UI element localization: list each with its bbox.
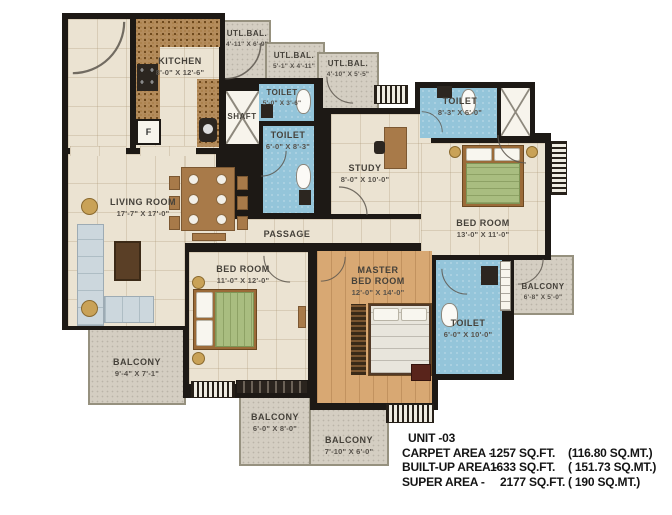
label-living-room: LIVING ROOM 17'-7" X 17'-0": [110, 197, 176, 219]
wardrobe-strip: [500, 261, 511, 311]
carpet-area-metric: (116.80 SQ.MT.): [568, 446, 652, 460]
label-toilet-right: TOILET 8'-3" X 6'-0": [438, 96, 482, 118]
label-balcony-bottom-1: BALCONY 6'-0" X 8'-0": [251, 412, 299, 434]
bedside-table: [526, 146, 538, 158]
kitchen-opening: [140, 146, 196, 156]
pillow: [373, 308, 399, 321]
room-dims: 12'-0" X 14'-0": [351, 287, 405, 298]
bed-mid-duvet: [215, 292, 254, 347]
plate: [216, 214, 227, 225]
label-balcony-left: BALCONY 9'-4" X 7'-1": [113, 357, 161, 379]
window-bedroom-mid: [191, 381, 235, 398]
room-name: PASSAGE: [264, 229, 311, 240]
builtup-area-row: BUILT-UP AREA -1633 SQ.FT.( 151.73 SQ.MT…: [402, 460, 670, 475]
room-name-line1: MASTER: [351, 265, 405, 276]
room-dims: 5'-1" X 4'-11": [273, 61, 315, 72]
unit-number: UNIT -03: [408, 431, 670, 446]
label-toilet-top: TOILET 5'-0" X 3'-6": [263, 87, 302, 109]
toilet-master-basin: [481, 266, 498, 285]
bed-right-duvet: [466, 163, 520, 204]
wardrobe-bedroom-mid: [236, 380, 308, 394]
room-dims: 11'-0" X 12'-0": [216, 275, 270, 286]
bedroom-mid-shelf: [298, 306, 306, 328]
window-master: [386, 404, 434, 423]
bedside-table: [449, 146, 461, 158]
room-dims: 6'-0" X 8'-0": [251, 423, 299, 434]
bedside-lamp: [192, 276, 205, 289]
label-passage: PASSAGE: [264, 229, 311, 240]
label-kitchen: KITCHEN 8'-0" X 12'-6": [156, 56, 205, 78]
room-dims: 6'-0" X 10'-0": [444, 329, 493, 340]
chair: [237, 216, 248, 230]
label-bedroom-right: BED ROOM 13'-0" X 11'-0": [456, 218, 510, 240]
room-dims: 6'-8" X 5'-0": [521, 292, 564, 303]
plate: [216, 194, 227, 205]
room-name: BALCONY: [325, 435, 374, 446]
room-name: STUDY: [341, 163, 390, 174]
chair: [169, 176, 180, 190]
room-name: TOILET: [266, 130, 310, 141]
builtup-area-value: 1633 SQ.FT.: [490, 460, 568, 475]
room-name: UTL.BAL.: [226, 28, 268, 39]
room-name: BALCONY: [521, 281, 564, 292]
label-bedroom-mid: BED ROOM 11'-0" X 12'-0": [216, 264, 270, 286]
super-area-row: SUPER AREA -2177 SQ.FT.( 190 SQ.MT.): [402, 475, 670, 490]
window-bedroom-right: [551, 141, 567, 195]
room-name: BALCONY: [251, 412, 299, 423]
super-area-metric: ( 190 SQ.MT.): [568, 475, 640, 489]
room-dims: 6'-0" X 8'-3": [266, 141, 310, 152]
toilet-mid-basin: [299, 190, 311, 205]
side-table-2: [81, 300, 98, 317]
label-toilet-mid: TOILET 6'-0" X 8'-3": [266, 130, 310, 152]
plate: [188, 214, 199, 225]
carpet-area-value: 1257 SQ.FT.: [490, 446, 568, 461]
room-name-line2: BED ROOM: [351, 276, 405, 287]
label-utility-balcony-3: UTL.BAL. 4'-10" X 5'-5": [327, 58, 369, 80]
room-dims: 13'-0" X 11'-0": [456, 229, 510, 240]
super-area-value: 2177 SQ.FT.: [490, 475, 568, 490]
room-dims: 17'-7" X 17'-0": [110, 208, 176, 219]
chair: [237, 176, 248, 190]
room-name: UTL.BAL.: [273, 50, 315, 61]
room-dims: 8'-0" X 10'-0": [341, 174, 390, 185]
foyer-opening: [70, 146, 126, 156]
room-dims: 8'-0" X 12'-6": [156, 67, 205, 78]
room-name: KITCHEN: [156, 56, 205, 67]
door-arc-bedroom-right: [497, 134, 527, 164]
window-study: [374, 85, 408, 104]
room-name: BED ROOM: [216, 264, 270, 275]
passage-floor: [216, 219, 432, 243]
side-table-1: [81, 198, 98, 215]
room-name: BED ROOM: [456, 218, 510, 229]
room-dims: 7'-10" X 6'-0": [325, 446, 374, 457]
chair: [237, 196, 248, 210]
pillow: [196, 320, 213, 346]
room-name: UTL.BAL.: [327, 58, 369, 69]
room-dims: 4'-11" X 6'-9": [226, 39, 268, 50]
plate: [188, 174, 199, 185]
floor-plan-unit-03: F: [0, 0, 672, 515]
carpet-area-label: CARPET AREA -: [402, 446, 490, 461]
label-utility-balcony-1: UTL.BAL. 4'-11" X 6'-9": [226, 28, 268, 50]
label-study: STUDY 8'-0" X 10'-0": [341, 163, 390, 185]
room-dims: 5'-0" X 3'-6": [263, 98, 302, 109]
fridge-label: F: [146, 127, 152, 137]
closet-cross-icon: [501, 88, 530, 136]
label-master-bedroom: MASTER BED ROOM 12'-0" X 14'-0": [351, 265, 405, 298]
bedside-lamp: [192, 352, 205, 365]
room-dims: 8'-3" X 6'-0": [438, 107, 482, 118]
door-arc-study: [338, 186, 368, 216]
room-name: LIVING ROOM: [110, 197, 176, 208]
toilet-mid-wc: [296, 164, 311, 189]
door-arc-utility-balcony-3: [326, 76, 354, 104]
label-shaft: SHAFT: [227, 111, 256, 122]
room-name: BALCONY: [113, 357, 161, 368]
builtup-area-label: BUILT-UP AREA -: [402, 460, 490, 475]
master-rug: [351, 304, 366, 375]
room-name: TOILET: [263, 87, 302, 98]
pillow: [196, 292, 213, 318]
living-rug: [114, 241, 141, 281]
builtup-area-metric: ( 151.73 SQ.MT.): [568, 460, 656, 474]
room-name: TOILET: [444, 318, 493, 329]
door-arc-entry: [71, 20, 126, 75]
plate: [188, 194, 199, 205]
door-arc-toilet-mid: [260, 150, 287, 177]
room-name: SHAFT: [227, 111, 256, 122]
label-utility-balcony-2: UTL.BAL. 5'-1" X 4'-11": [273, 50, 315, 72]
study-chair: [374, 141, 385, 154]
room-dims: 9'-4" X 7'-1": [113, 368, 161, 379]
room-dims: 4'-10" X 5'-5": [327, 69, 369, 80]
pillow: [401, 308, 427, 321]
label-balcony-bottom-2: BALCONY 7'-10" X 6'-0": [325, 435, 374, 457]
door-arc-toilet-master: [441, 268, 468, 295]
door-arc-master: [320, 256, 346, 282]
sofa-loveseat: [104, 296, 154, 323]
room-name: TOILET: [438, 96, 482, 107]
unit-info: UNIT -03 CARPET AREA -1257 SQ.FT.(116.80…: [402, 431, 670, 489]
super-area-label: SUPER AREA -: [402, 475, 490, 490]
dining-bench: [192, 233, 226, 241]
carpet-area-row: CARPET AREA -1257 SQ.FT.(116.80 SQ.MT.): [402, 446, 670, 461]
kitchen-sink-basin: [203, 124, 213, 134]
master-dresser: [411, 364, 431, 381]
fridge: F: [136, 119, 161, 145]
pillow: [466, 148, 492, 161]
plate: [216, 174, 227, 185]
label-toilet-master: TOILET 6'-0" X 10'-0": [444, 318, 493, 340]
label-balcony-right: BALCONY 6'-8" X 5'-0": [521, 281, 564, 303]
